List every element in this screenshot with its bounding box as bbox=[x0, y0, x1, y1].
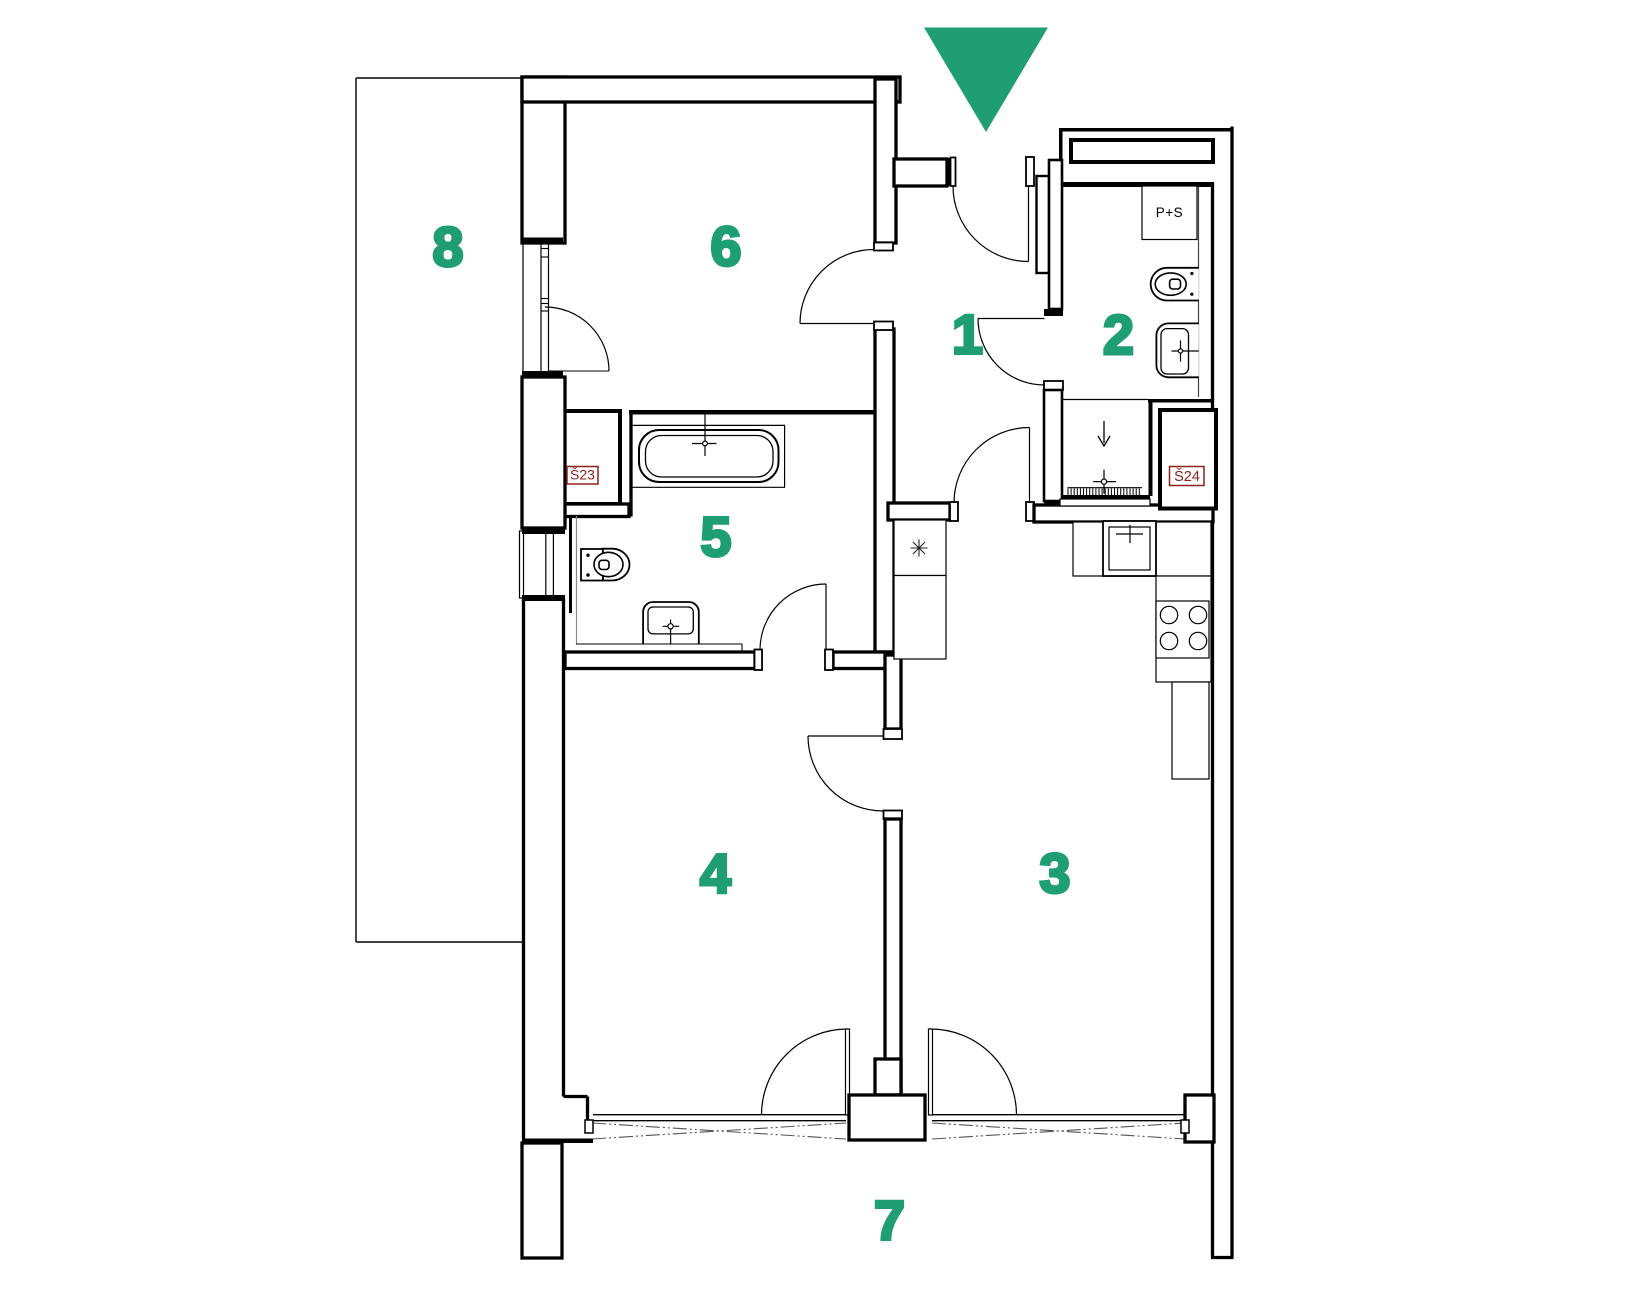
svg-text:Š24: Š24 bbox=[1174, 468, 1200, 485]
svg-text:3: 3 bbox=[1039, 842, 1070, 905]
svg-text:4: 4 bbox=[700, 842, 731, 905]
svg-text:P+S: P+S bbox=[1156, 205, 1183, 220]
svg-text:1: 1 bbox=[952, 303, 983, 366]
svg-text:2: 2 bbox=[1103, 303, 1134, 366]
svg-text:Š23: Š23 bbox=[570, 467, 595, 483]
svg-text:7: 7 bbox=[874, 1189, 905, 1252]
svg-text:8: 8 bbox=[432, 215, 463, 278]
svg-text:5: 5 bbox=[700, 505, 731, 568]
svg-text:6: 6 bbox=[710, 215, 741, 278]
